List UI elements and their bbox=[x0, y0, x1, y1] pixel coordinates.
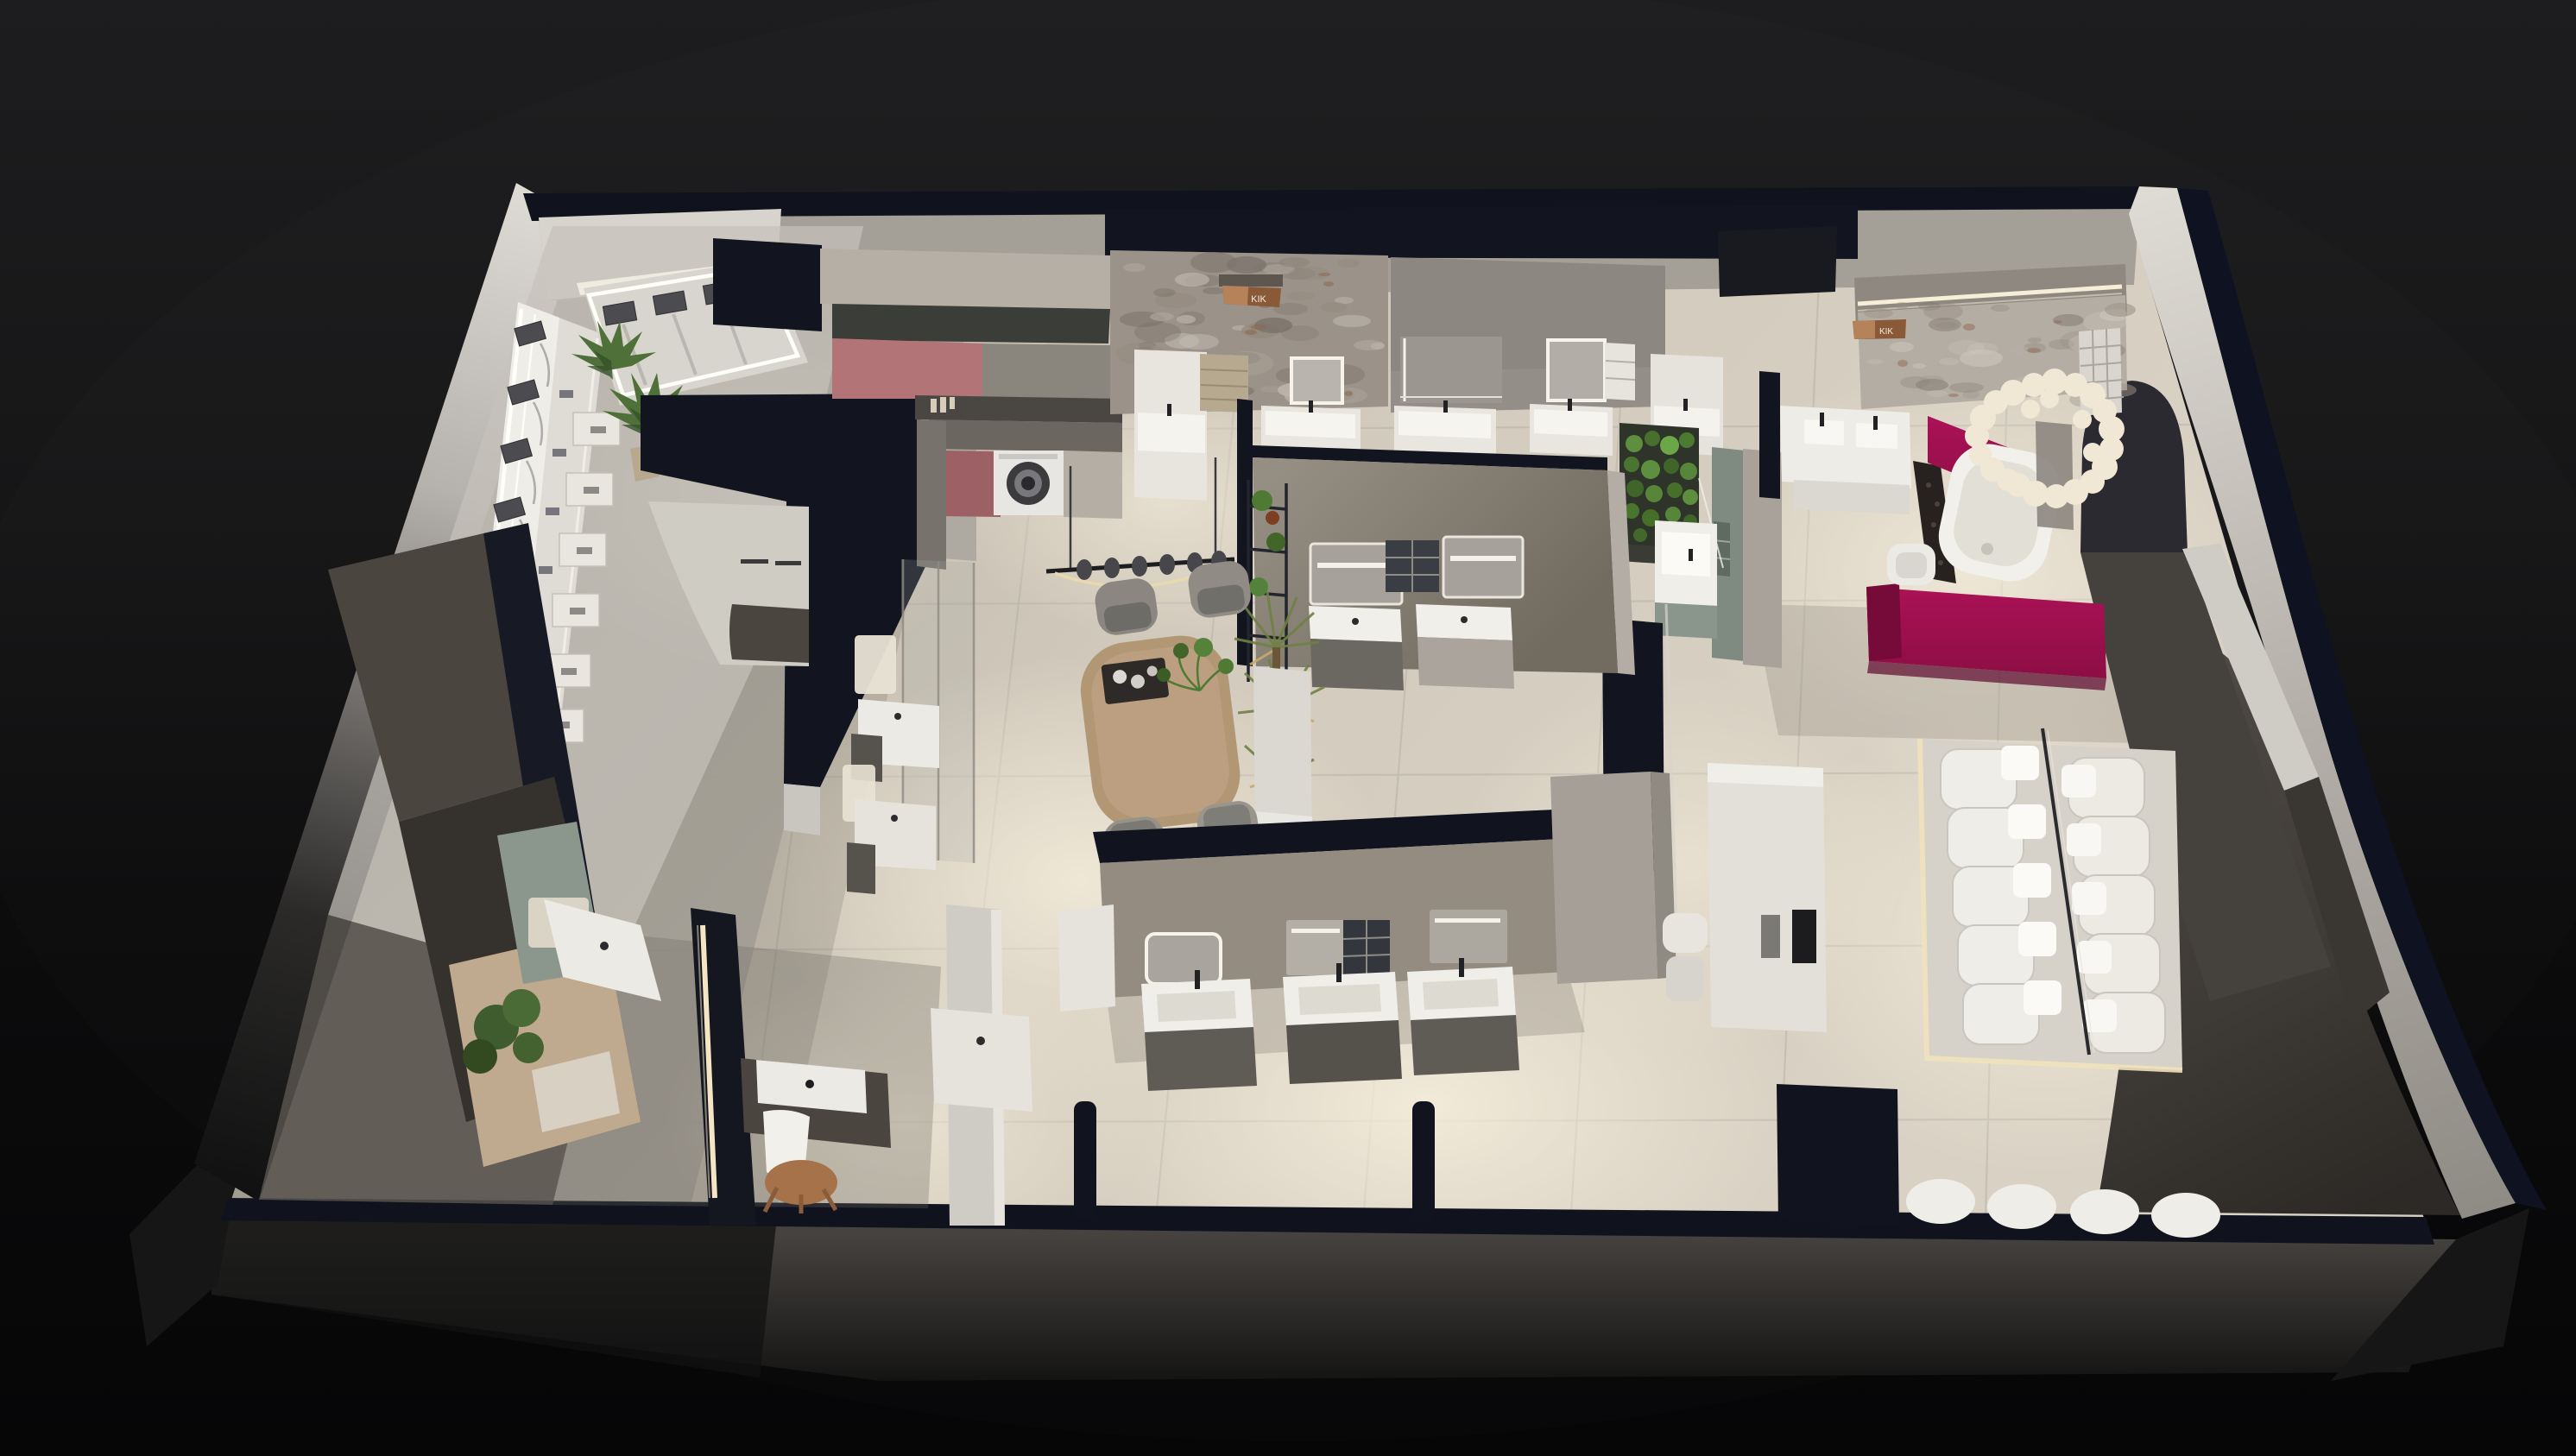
svg-text:KIK: KIK bbox=[1251, 294, 1266, 305]
svg-text:KIK: KIK bbox=[1879, 327, 1893, 337]
